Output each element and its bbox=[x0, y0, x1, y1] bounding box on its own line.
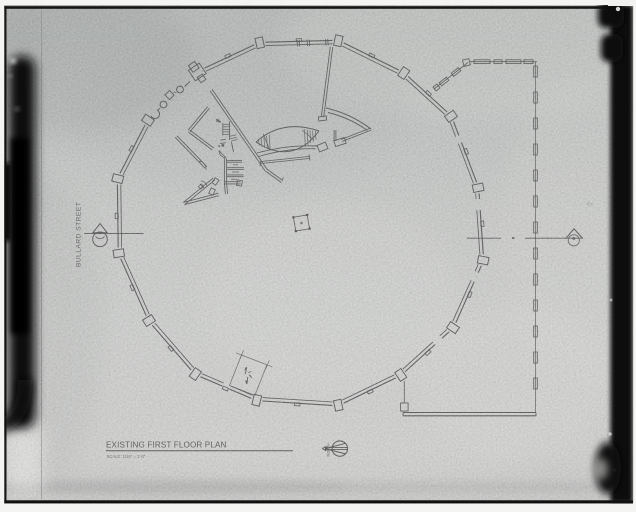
svg-text:45: 45 bbox=[586, 202, 593, 208]
